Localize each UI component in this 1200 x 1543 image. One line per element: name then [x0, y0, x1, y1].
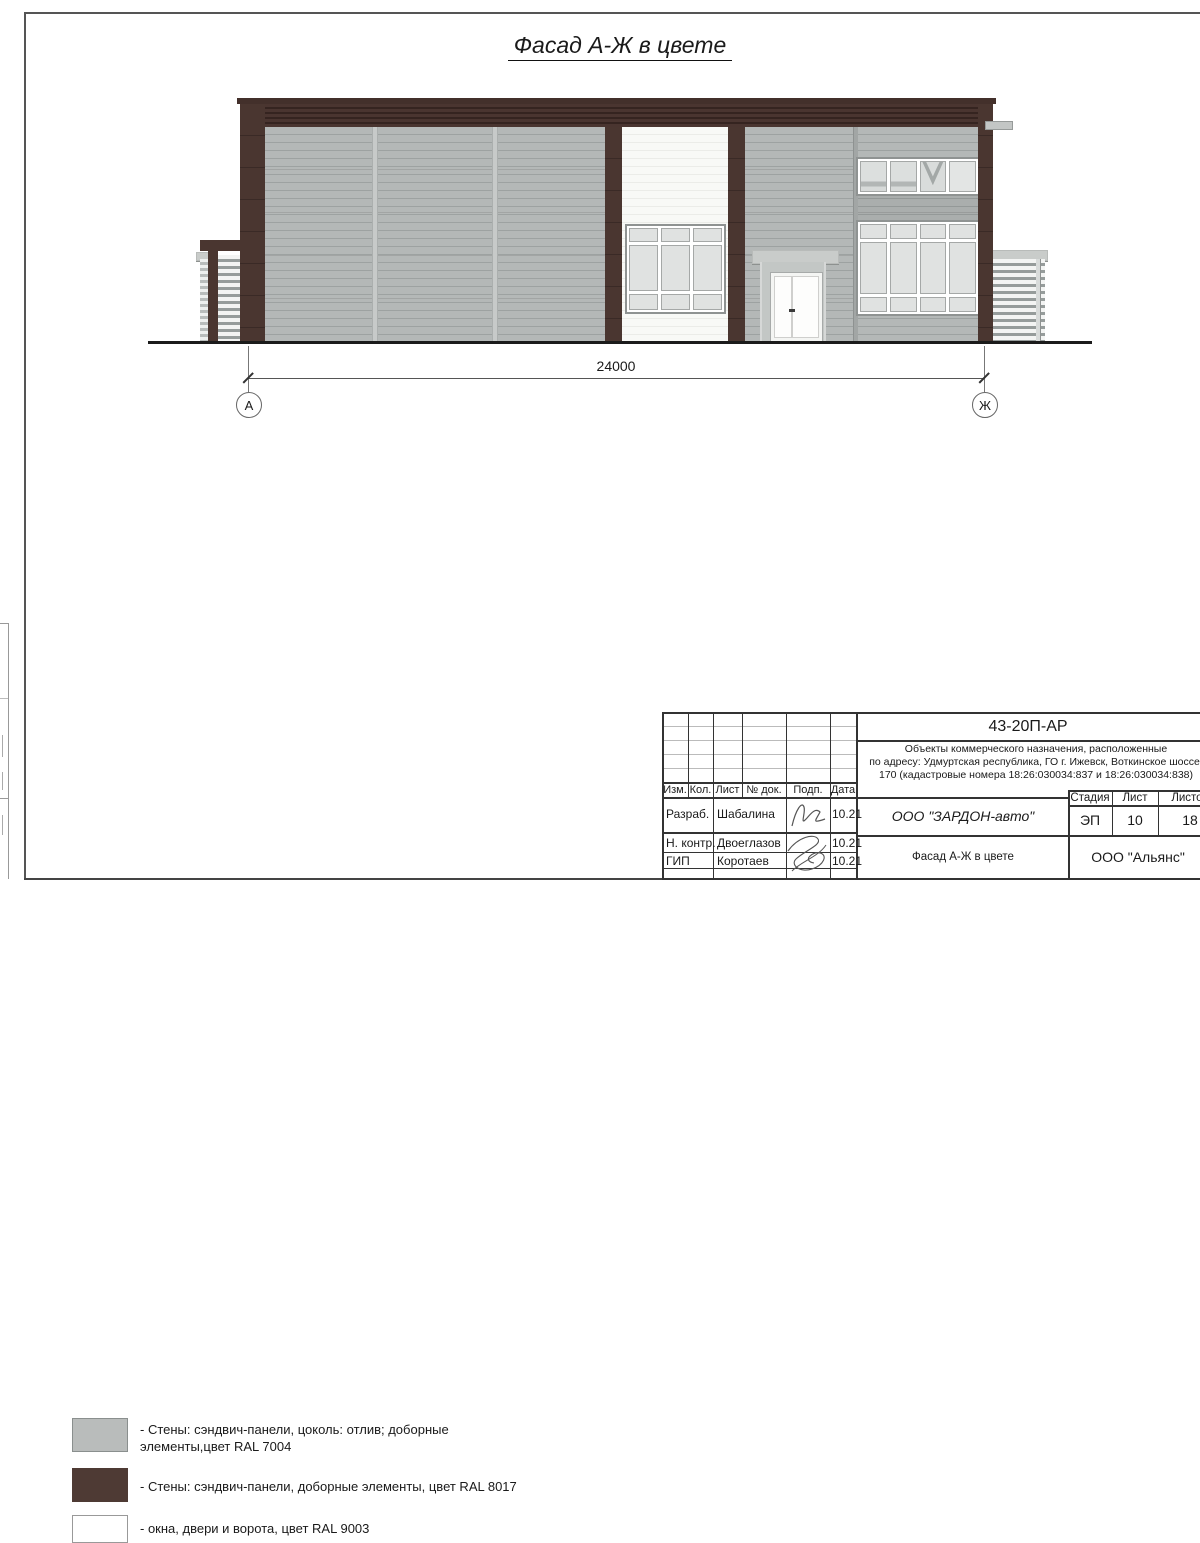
col-list: Лист	[713, 783, 742, 797]
legend-label-ral9003: - окна, двери и ворота, цвет RAL 9003	[140, 1520, 620, 1537]
legend-swatch-ral9003	[72, 1515, 128, 1543]
sheet-label: Лист	[1112, 791, 1158, 804]
sheet-value: 10	[1112, 806, 1158, 834]
description-line: Объекты коммерческого назначения, распол…	[856, 743, 1200, 756]
legend-swatch-ral8017	[72, 1468, 128, 1502]
tb-line-thin	[662, 768, 856, 769]
contractor-name: ООО "Альянс"	[1068, 836, 1200, 878]
stage-value: ЭП	[1068, 806, 1112, 834]
legend-line: - окна, двери и ворота, цвет RAL 9003	[140, 1520, 620, 1537]
legend-line: элементы,цвет RAL 7004	[140, 1438, 560, 1455]
col-izm: Изм.	[662, 783, 688, 797]
legend-label-ral8017: - Стены: сэндвич-панели, доборные элемен…	[140, 1478, 620, 1495]
legend-swatch-ral7004	[72, 1418, 128, 1452]
drawing-name: Фасад А-Ж в цвете	[858, 836, 1068, 878]
person-name: Коротаев	[717, 853, 785, 868]
person-name: Шабалина	[717, 800, 785, 828]
tb-line-thin	[662, 726, 856, 727]
project-description: Объекты коммерческого назначения, распол…	[856, 743, 1200, 782]
description-line: по адресу: Удмуртская республика, ГО г. …	[856, 756, 1200, 769]
signature	[787, 799, 829, 831]
col-data: Дата	[830, 783, 856, 797]
legend-label-ral7004: - Стены: сэндвич-панели, цоколь: отлив; …	[140, 1421, 560, 1455]
legend-line: - Стены: сэндвич-панели, доборные элемен…	[140, 1478, 620, 1495]
signature	[784, 831, 832, 877]
col-doc: № док.	[742, 783, 786, 797]
sheets-label: Листов	[1158, 791, 1200, 804]
col-podp: Подп.	[786, 783, 830, 797]
doc-number: 43-20П-АР	[856, 714, 1200, 740]
legend-line: - Стены: сэндвич-панели, цоколь: отлив; …	[140, 1421, 560, 1438]
tb-line-thin	[662, 740, 856, 741]
person-role: Н. контр.	[666, 834, 716, 851]
title-block: 43-20П-АР Объекты коммерческого назначен…	[0, 0, 1200, 900]
person-date: 10.21	[832, 834, 856, 851]
sheets-value: 18	[1158, 806, 1200, 834]
person-role: Разраб.	[666, 800, 712, 828]
person-date: 10.21	[832, 800, 856, 828]
tb-line	[662, 878, 1200, 880]
description-line: 170 (кадастровые номера 18:26:030034:837…	[856, 769, 1200, 782]
person-date: 10.21	[832, 853, 856, 868]
person-name: Двоеглазов	[717, 834, 785, 851]
person-role: ГИП	[666, 853, 716, 868]
tb-line	[856, 740, 1200, 742]
org-name: ООО "ЗАРДОН-авто"	[858, 799, 1068, 833]
stage-label: Стадия	[1068, 791, 1112, 804]
tb-line-thin	[662, 754, 856, 755]
col-kol: Кол.	[688, 783, 713, 797]
